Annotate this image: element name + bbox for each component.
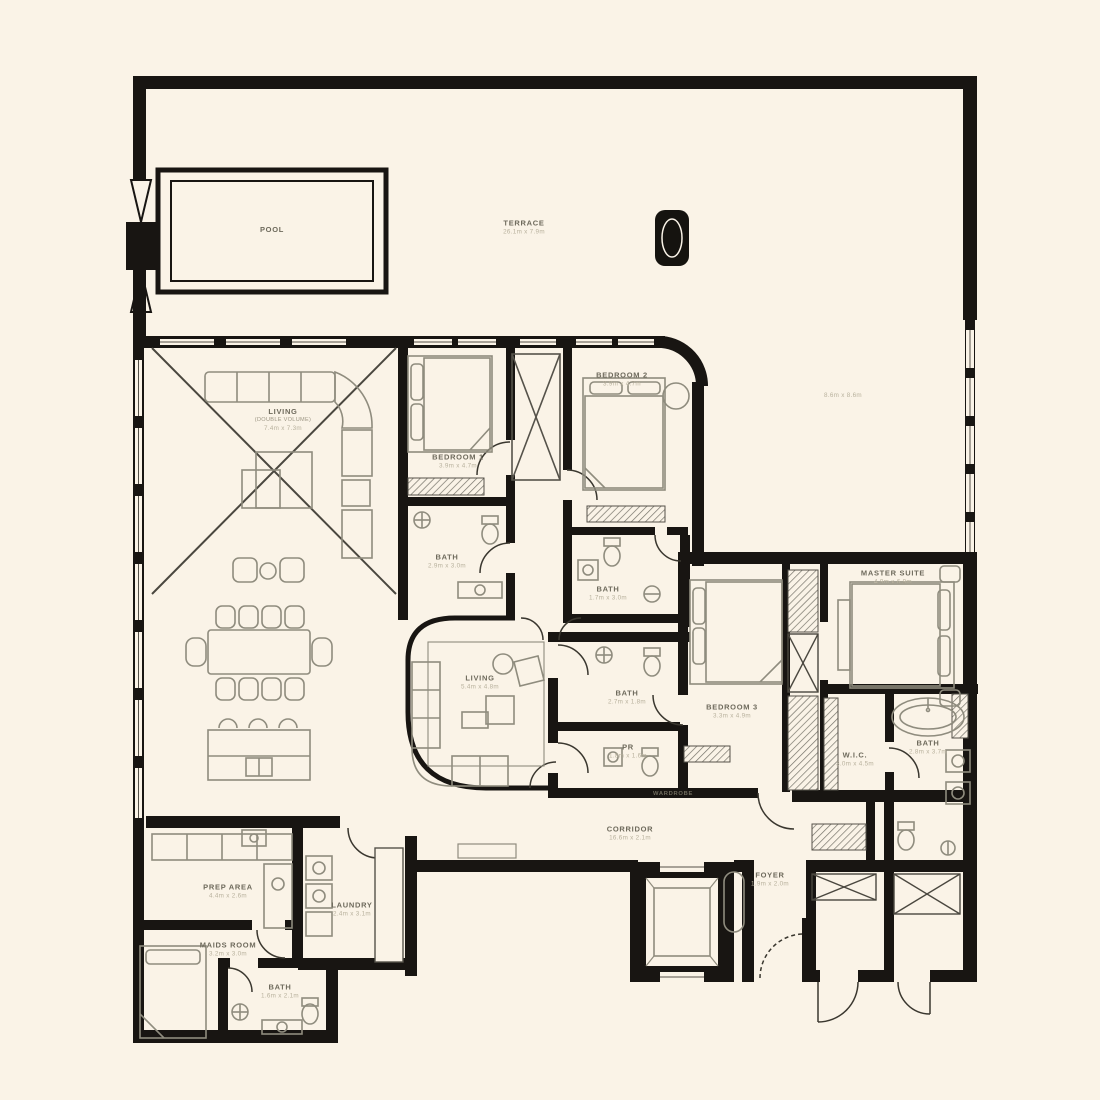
laundry-machines xyxy=(306,856,332,936)
bed-icon-bedroom1 xyxy=(408,356,492,452)
bed-icon-bedroom3 xyxy=(690,580,782,684)
curved-corner-wall xyxy=(662,342,702,386)
corridor-mat xyxy=(458,844,516,858)
double-volume-marker xyxy=(152,348,396,594)
bath2-fixtures xyxy=(578,538,660,602)
bath1-fixtures xyxy=(414,512,502,598)
dining-table-icon xyxy=(186,606,332,700)
bath3-fixtures xyxy=(596,647,660,676)
pr-fixtures xyxy=(604,748,658,776)
laundry-cupboard xyxy=(375,848,403,962)
family-living-curved-wall xyxy=(408,618,548,788)
guest-bath-fixtures xyxy=(898,822,955,855)
bed-icon-maids xyxy=(140,946,206,1038)
floor-plan-svg xyxy=(0,0,1100,1100)
ottoman-icons xyxy=(233,558,304,582)
elevator xyxy=(630,862,734,982)
family-living-furniture xyxy=(412,642,544,786)
planter-icon xyxy=(655,210,689,266)
kitchen-island-icon xyxy=(208,719,310,780)
bed-icon-bedroom2 xyxy=(583,378,689,490)
service-shaft xyxy=(512,354,560,480)
floor-plan: POOL TERRACE 26.1m x 7.9m 8.6m x 8.6m LI… xyxy=(0,0,1100,1100)
pool-outline xyxy=(158,170,386,292)
prep-counters xyxy=(152,830,292,928)
dashed-entry-door xyxy=(760,934,804,978)
maids-bath-fixtures xyxy=(232,998,318,1034)
sofa-icon xyxy=(205,372,372,558)
